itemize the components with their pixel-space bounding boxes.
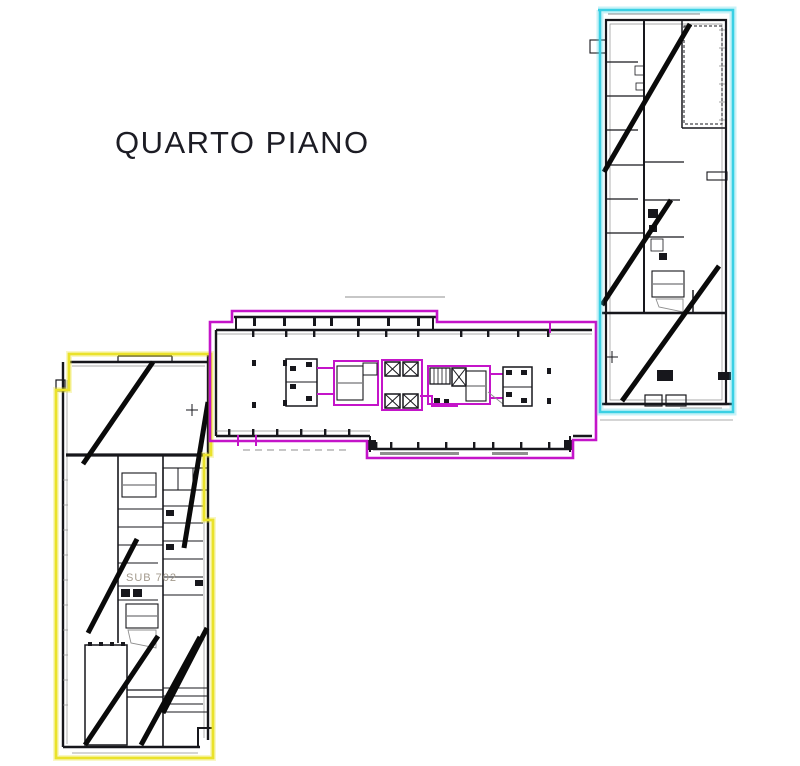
survey-cross-icon [186, 404, 198, 416]
elevator-icon [385, 394, 400, 408]
elevator-icon [403, 394, 418, 408]
elevator-icon [385, 362, 400, 376]
diagonal-slash-mark [83, 362, 153, 464]
diagonal-slash-marks [602, 24, 719, 401]
floor-title: QUARTO PIANO [115, 125, 370, 160]
elevator-icon [452, 368, 466, 386]
survey-cross-icon [606, 351, 618, 363]
wing-top-right [590, 10, 733, 420]
service-core [286, 359, 532, 410]
stair-icon [122, 473, 156, 497]
stair-icon [652, 271, 684, 297]
stair-icon [337, 366, 363, 400]
diagonal-slash-mark [602, 200, 671, 305]
wing-center [210, 297, 596, 458]
floor-plan-drawing: QUARTO PIANO [0, 0, 800, 766]
floor-plan-page: QUARTO PIANO [0, 0, 800, 766]
diagonal-slash-mark [163, 628, 207, 713]
wing-bottom-left-walls [56, 354, 213, 753]
wc-cell [363, 363, 377, 375]
elevator-icon [403, 362, 418, 376]
unit-label: SUB 702 [126, 572, 177, 584]
diagonal-slash-mark [604, 24, 690, 172]
stair-icon [126, 604, 158, 628]
wing-bottom-left: SUB 702 [56, 354, 213, 758]
dashed-terrace-room [684, 26, 722, 124]
stair-icon [466, 371, 486, 401]
